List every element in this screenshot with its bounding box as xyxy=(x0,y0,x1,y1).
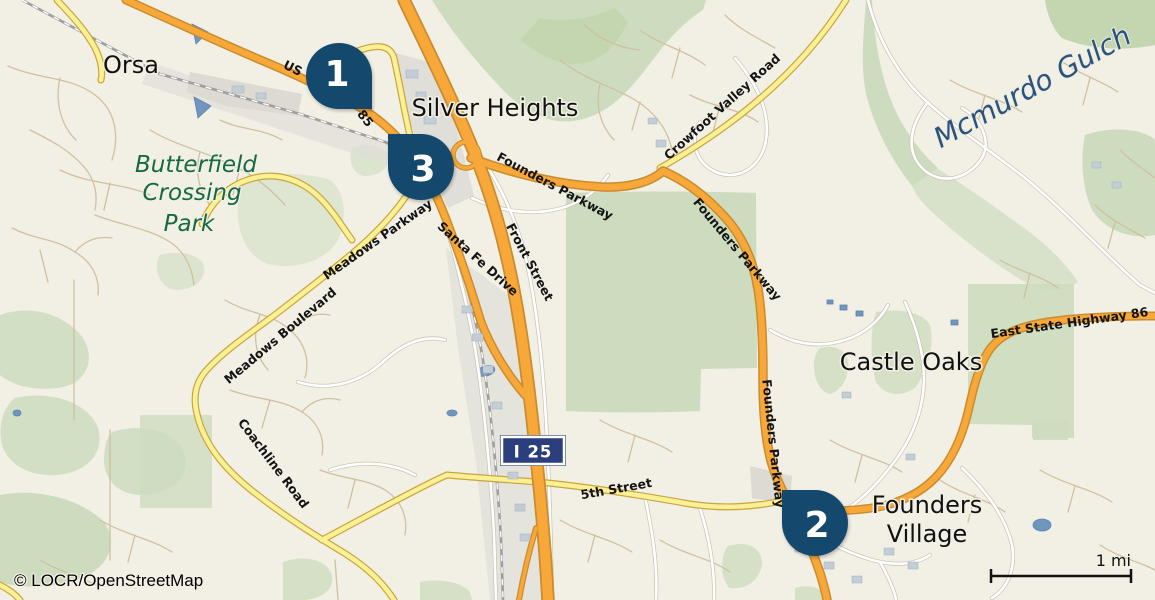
map-attribution: © LOCR/OpenStreetMap xyxy=(14,571,203,590)
place-label-founders-village-1: Founders xyxy=(872,491,982,519)
map-marker-2-number: 2 xyxy=(804,505,829,546)
scale-bar-label: 1 mi xyxy=(1096,551,1131,570)
map-marker-2[interactable]: 2 xyxy=(782,490,848,556)
place-label-castle-oaks: Castle Oaks xyxy=(840,348,982,376)
map-marker-3[interactable]: 3 xyxy=(388,134,454,200)
map-canvas[interactable]: US 85 Founders Parkway Founders Parkway … xyxy=(0,0,1155,600)
park-label-line1: Butterfield xyxy=(135,152,257,178)
map-tiles: US 85 Founders Parkway Founders Parkway … xyxy=(0,0,1155,600)
i25-shield-label: I 25 xyxy=(514,443,553,462)
place-label-orsa: Orsa xyxy=(103,51,159,79)
place-label-founders-village-2: Village xyxy=(887,520,968,548)
i25-shield: I 25 xyxy=(500,435,566,466)
map-marker-1-number: 1 xyxy=(324,54,349,95)
map-marker-1[interactable]: 1 xyxy=(306,43,372,109)
park-label-line2: Crossing xyxy=(142,180,241,206)
park-label-line3: Park xyxy=(164,211,216,237)
map-marker-3-number: 3 xyxy=(410,149,435,190)
place-label-silver-heights: Silver Heights xyxy=(412,94,579,122)
